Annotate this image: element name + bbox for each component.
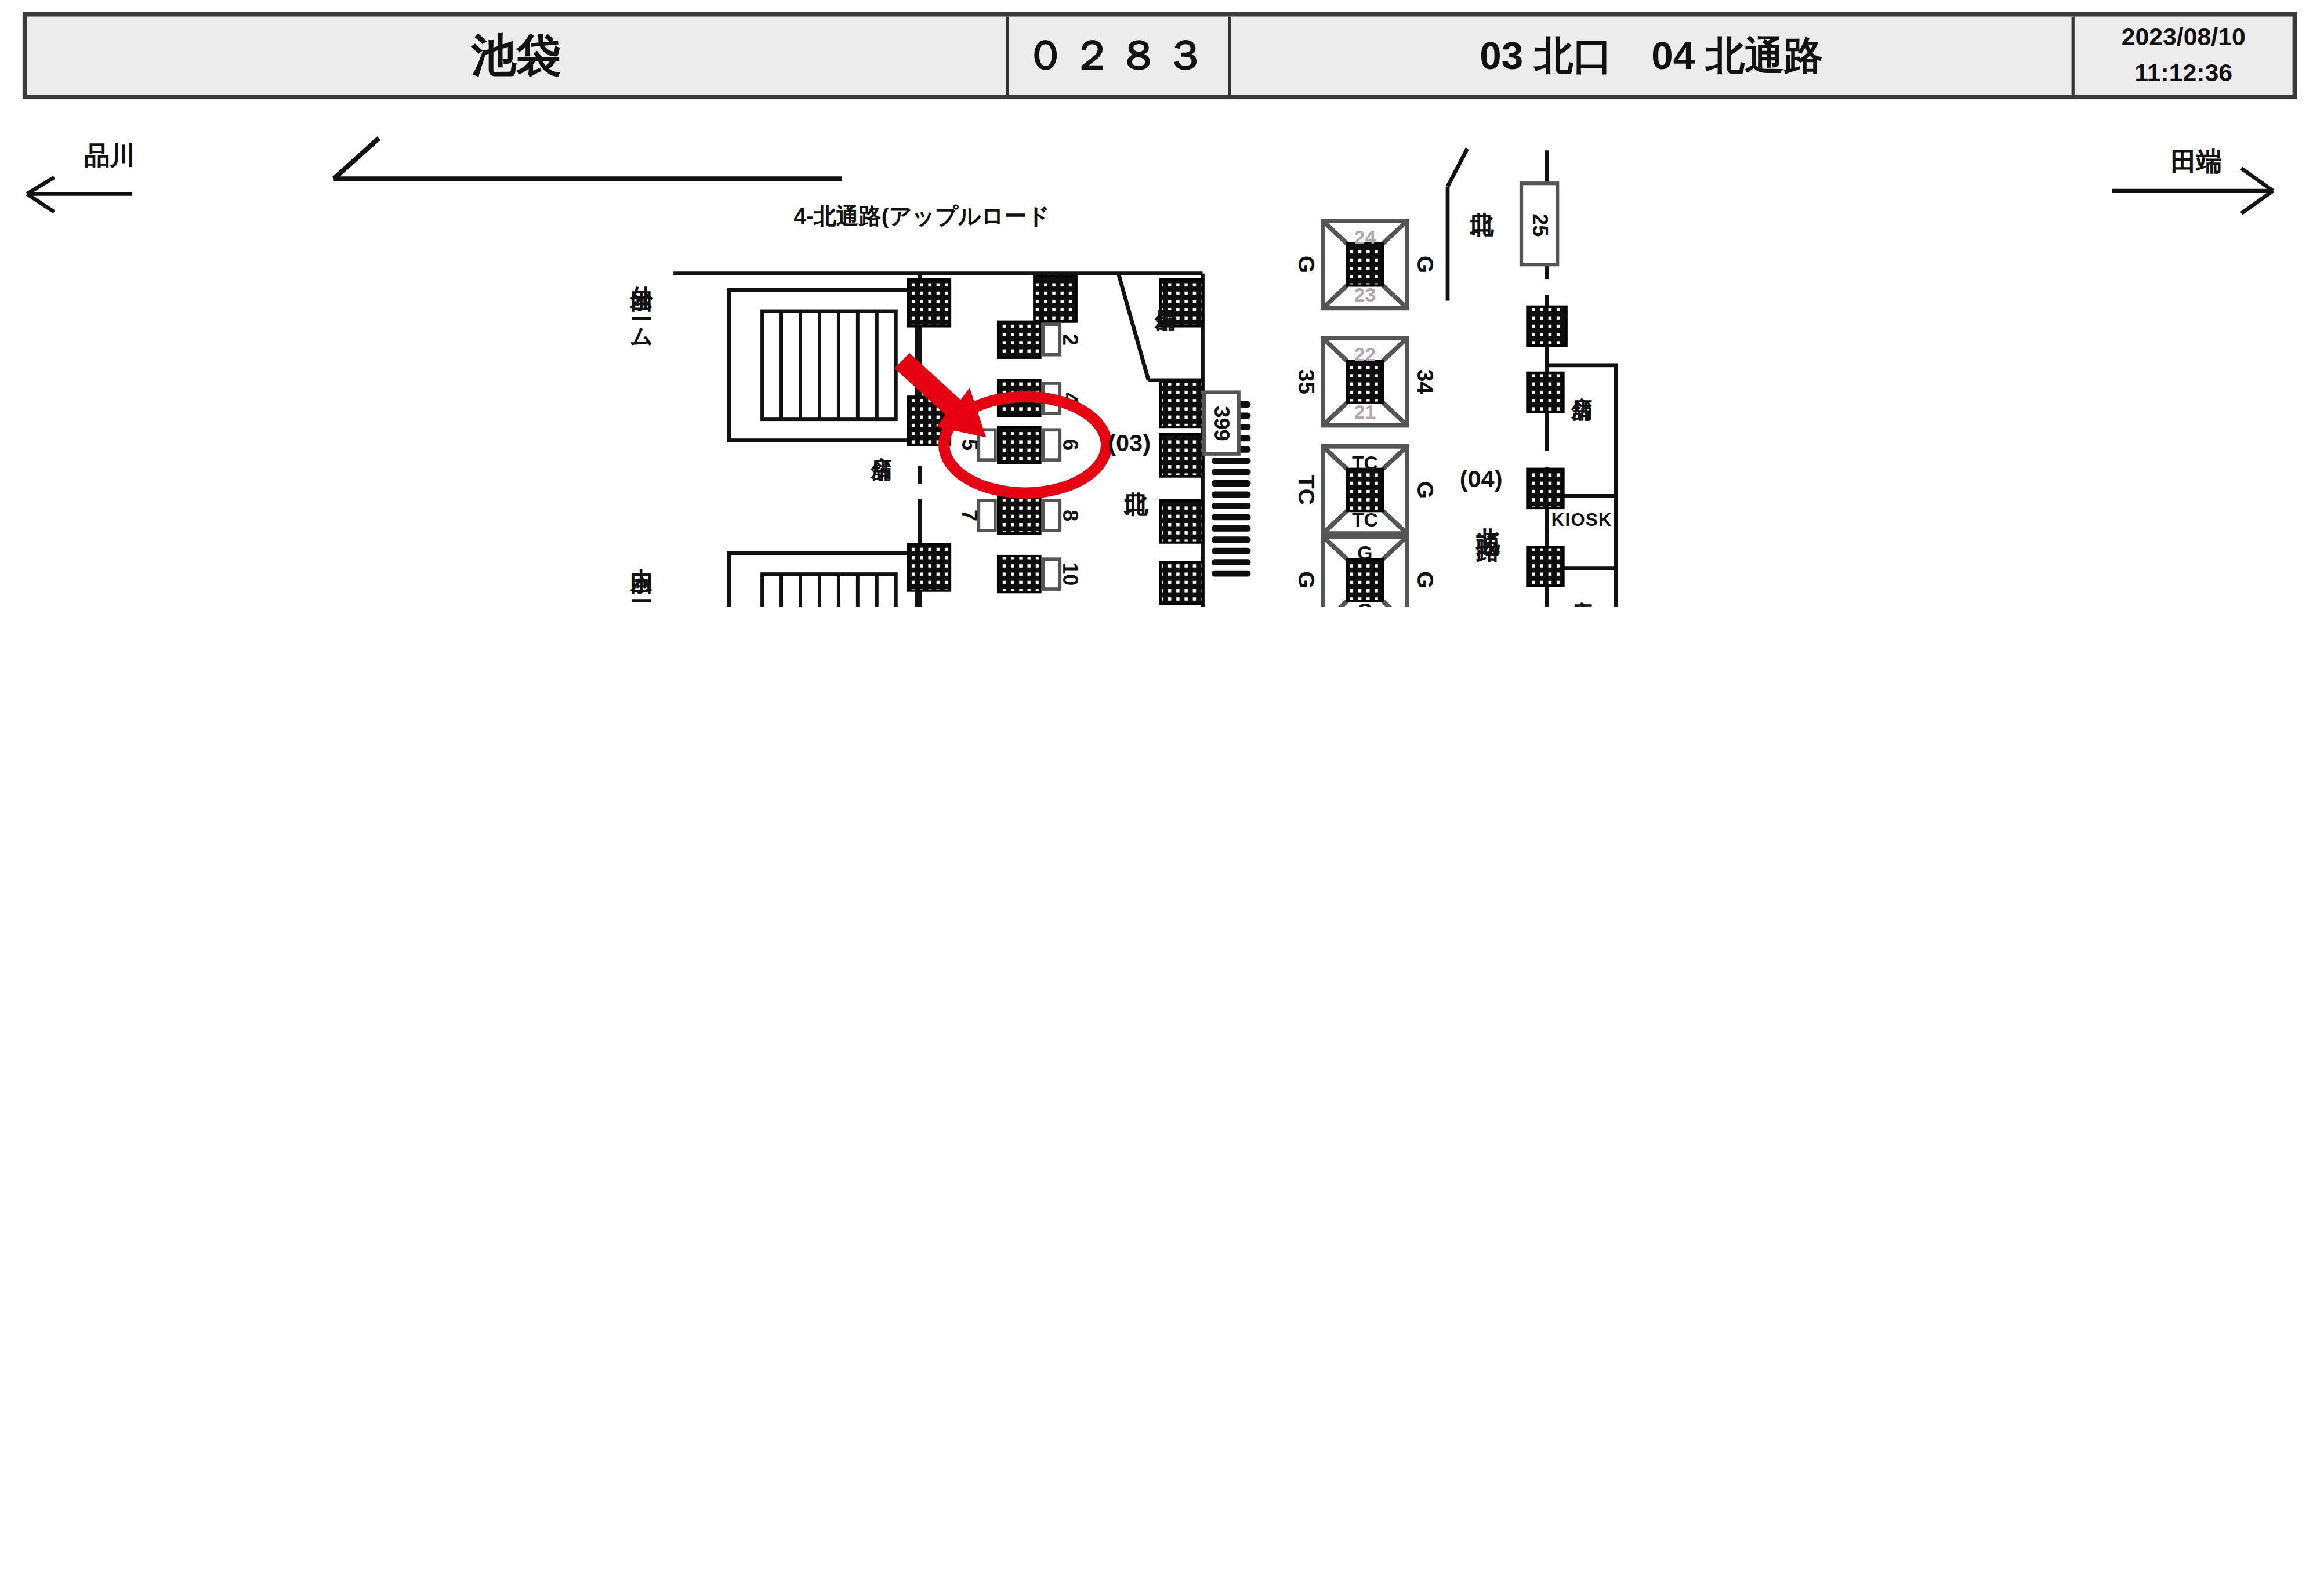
pillar — [1527, 469, 1563, 508]
kiosk-label: KIOSK — [1551, 511, 1612, 531]
pillar — [1161, 434, 1203, 477]
map-text: G — [1357, 542, 1372, 564]
map-text: G — [1413, 256, 1438, 273]
shop-label-pocket: 店舗 — [1153, 289, 1177, 298]
stair-bar — [1212, 469, 1250, 475]
floorplan-drawing: 245678102423GG22213534TCTCTCGGGGGTCTC78T… — [0, 0, 2324, 607]
ad-box: 2 — [998, 322, 1082, 358]
generated-layer: 245678102423GG22213534TCTCTCGGGGGTCTC78T… — [684, 221, 1566, 607]
stair-bar — [1212, 559, 1250, 565]
pillar-box: GGGG — [1294, 536, 1438, 607]
pillar — [908, 279, 951, 326]
map-text: G — [1294, 571, 1319, 589]
map-text: G — [1413, 481, 1438, 499]
map-text: 21 — [1354, 401, 1376, 423]
map-text: 10 — [1058, 562, 1082, 586]
left-station-label: 品川 — [84, 141, 135, 170]
pillar-box: TCTCTCG — [1294, 446, 1438, 533]
stair-bar — [1212, 548, 1250, 554]
pillar — [1161, 279, 1203, 326]
arrow-north-exit-icon — [1448, 149, 1467, 301]
passage04-name-top: 北通路 — [1475, 508, 1502, 521]
pillar-box: 22213534 — [1294, 338, 1438, 425]
staircase — [729, 290, 917, 440]
shop-label-right-upper: 店舗 — [1569, 379, 1593, 388]
map-text: 7 — [958, 510, 981, 521]
map-text: 24 — [1354, 227, 1376, 248]
pillar — [1527, 547, 1563, 586]
map-text: 23 — [1354, 284, 1376, 306]
map-text: G — [1294, 256, 1319, 273]
map-text: 6 — [1058, 439, 1082, 451]
ad-box: 78 — [958, 498, 1082, 533]
platform-label-sotomawari: 外回ホーム — [628, 267, 654, 341]
ad-box: 10 — [998, 556, 1082, 592]
pillar — [1034, 277, 1076, 322]
map-text: 35 — [1294, 369, 1319, 394]
stair-bar — [1212, 536, 1250, 543]
arrow-to-shinagawa-icon — [27, 177, 132, 212]
map-text: TC — [1352, 452, 1378, 474]
pillar — [1527, 307, 1566, 346]
platform-label-uchimawari: 内回ホーム — [628, 550, 654, 607]
map-text: G — [1357, 600, 1372, 607]
pillar — [908, 544, 951, 590]
right-station-label: 田端 — [2171, 147, 2222, 176]
arrow-to-north-passage-icon — [333, 138, 842, 179]
stair-bar — [1212, 492, 1250, 498]
map-text: 34 — [1413, 369, 1438, 395]
pillar — [1161, 382, 1203, 427]
map-text: G — [1413, 571, 1438, 589]
station-floor-map: 池袋 ０２８３ 03 北口 04 北通路 2023/08/10 11:12:36 — [0, 0, 2324, 607]
staircase — [729, 553, 917, 607]
stair-bar — [1212, 571, 1250, 577]
stair-bar — [1212, 525, 1250, 532]
stair-bar — [1212, 503, 1250, 509]
pillar-box: 2423GG — [1294, 221, 1438, 308]
map-text: 2 — [1058, 334, 1082, 346]
gate03-number: (03) — [1108, 430, 1151, 456]
wall-number-399: 399 — [1209, 401, 1232, 446]
stair-bar — [1212, 480, 1250, 487]
shop-label-right-lower: 店舗 — [1569, 583, 1593, 593]
pillar — [1527, 373, 1563, 412]
pillar — [1161, 500, 1203, 543]
gate03-name: 北口 — [1123, 472, 1150, 481]
direction-arrows — [27, 138, 2273, 607]
north-exit-label: 北口 — [1469, 193, 1495, 202]
top-route-label: 4-北通路(アップルロード — [794, 204, 1050, 230]
map-text: TC — [1352, 509, 1378, 531]
map-text: 22 — [1354, 344, 1376, 365]
passage04-number-top: (04) — [1460, 466, 1503, 492]
shop-label-1: 店舗 — [869, 439, 893, 448]
map-text: 8 — [1058, 510, 1082, 521]
map-text: TC — [1294, 475, 1319, 505]
stair-bar — [1212, 514, 1250, 520]
pillar — [1161, 562, 1203, 604]
wall-number-25: 25 — [1528, 202, 1551, 248]
map-text: 5 — [958, 439, 981, 451]
stair-bar — [1212, 458, 1250, 464]
